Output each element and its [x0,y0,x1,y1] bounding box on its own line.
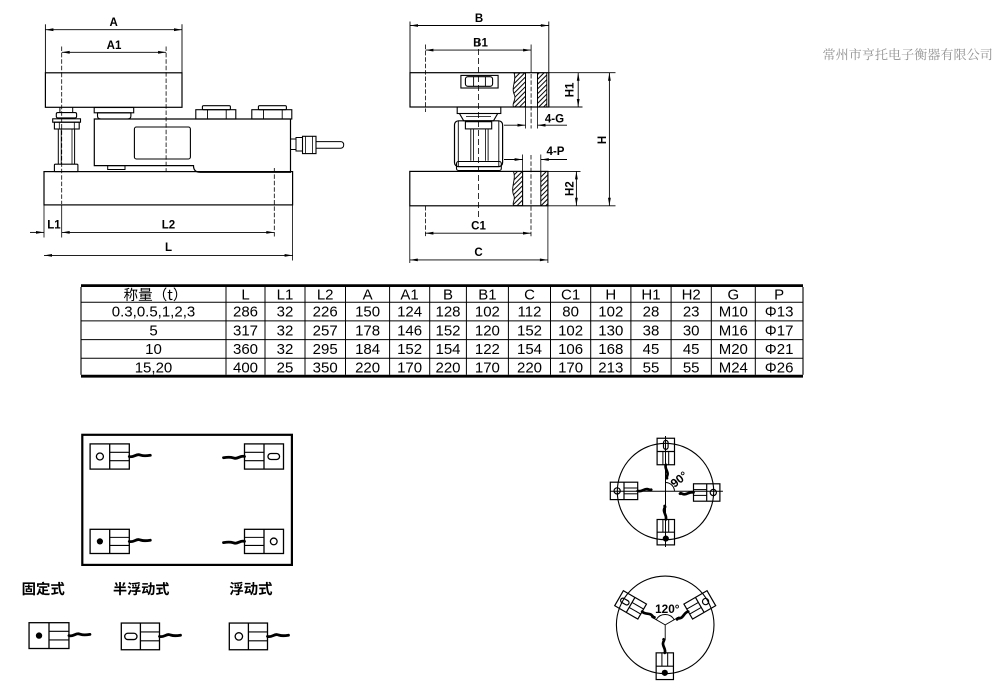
svg-text:L: L [165,242,172,254]
svg-text:32: 32 [277,322,294,339]
svg-text:38: 38 [643,322,660,339]
svg-text:A: A [363,287,373,304]
svg-text:124: 124 [397,304,422,321]
svg-text:220: 220 [355,359,380,376]
svg-text:Φ26: Φ26 [765,359,794,376]
svg-text:L1: L1 [47,220,61,232]
svg-text:220: 220 [435,359,460,376]
svg-text:120°: 120° [655,602,680,616]
svg-text:L: L [241,287,249,304]
svg-text:154: 154 [435,341,460,358]
svg-text:170: 170 [397,359,422,376]
svg-text:150: 150 [355,304,380,321]
svg-text:152: 152 [397,341,422,358]
svg-text:257: 257 [313,322,338,339]
svg-text:317: 317 [233,322,258,339]
svg-text:B1: B1 [478,287,496,304]
svg-text:295: 295 [313,341,338,358]
svg-text:Φ17: Φ17 [765,322,794,339]
svg-text:B: B [443,287,453,304]
svg-text:4-G: 4-G [545,114,564,126]
svg-text:M16: M16 [719,322,748,339]
svg-text:23: 23 [683,304,700,321]
svg-text:H1: H1 [564,82,576,97]
svg-text:170: 170 [475,359,500,376]
svg-text:213: 213 [598,359,623,376]
svg-text:112: 112 [518,304,542,321]
svg-text:168: 168 [598,341,623,358]
svg-text:55: 55 [643,359,660,376]
svg-text:A1: A1 [400,287,418,304]
svg-text:170: 170 [558,359,583,376]
svg-text:120: 120 [475,322,500,339]
svg-text:A1: A1 [107,40,122,52]
svg-text:H: H [605,287,616,304]
svg-text:45: 45 [683,341,700,358]
svg-text:P: P [774,287,784,304]
svg-text:H2: H2 [565,181,577,196]
svg-text:178: 178 [355,322,380,339]
svg-text:32: 32 [277,341,294,358]
svg-text:32: 32 [277,304,294,321]
svg-text:H2: H2 [682,287,701,304]
svg-text:45: 45 [643,341,660,358]
svg-text:M10: M10 [719,304,748,321]
svg-text:L2: L2 [162,220,175,232]
svg-text:28: 28 [643,304,660,321]
svg-text:M24: M24 [719,359,748,376]
svg-text:152: 152 [517,322,542,339]
svg-text:H: H [597,136,609,144]
svg-text:5: 5 [149,322,157,339]
svg-text:0.3,0.5,1,2,3: 0.3,0.5,1,2,3 [112,304,195,321]
svg-text:L1: L1 [277,287,294,304]
svg-text:106: 106 [558,341,583,358]
svg-text:C: C [524,287,535,304]
svg-text:400: 400 [233,359,258,376]
svg-text:220: 220 [517,359,542,376]
svg-text:146: 146 [397,322,422,339]
svg-text:154: 154 [517,341,542,358]
svg-text:A: A [110,17,118,29]
svg-text:C1: C1 [471,220,486,232]
svg-text:10: 10 [145,341,162,358]
svg-text:130: 130 [598,322,623,339]
svg-text:C: C [474,247,482,259]
svg-text:M20: M20 [719,341,748,358]
svg-text:15,20: 15,20 [135,359,173,376]
svg-text:G: G [727,287,739,304]
svg-text:4-P: 4-P [547,146,565,158]
svg-text:Φ21: Φ21 [765,341,794,358]
svg-text:30: 30 [683,322,700,339]
svg-text:H1: H1 [641,287,660,304]
svg-text:360: 360 [233,341,258,358]
svg-text:25: 25 [277,359,294,376]
svg-text:102: 102 [558,322,583,339]
svg-text:128: 128 [435,304,460,321]
svg-text:Φ13: Φ13 [765,304,794,321]
svg-text:122: 122 [475,341,500,358]
svg-text:B1: B1 [473,37,488,49]
svg-text:286: 286 [233,304,258,321]
svg-text:80: 80 [562,304,579,321]
svg-text:B: B [475,13,483,25]
svg-text:226: 226 [313,304,338,321]
svg-text:350: 350 [313,359,338,376]
svg-text:L2: L2 [317,287,334,304]
svg-text:152: 152 [435,322,460,339]
svg-text:184: 184 [355,341,380,358]
svg-text:C1: C1 [561,287,580,304]
svg-text:55: 55 [683,359,700,376]
svg-text:102: 102 [475,304,500,321]
svg-text:102: 102 [598,304,623,321]
